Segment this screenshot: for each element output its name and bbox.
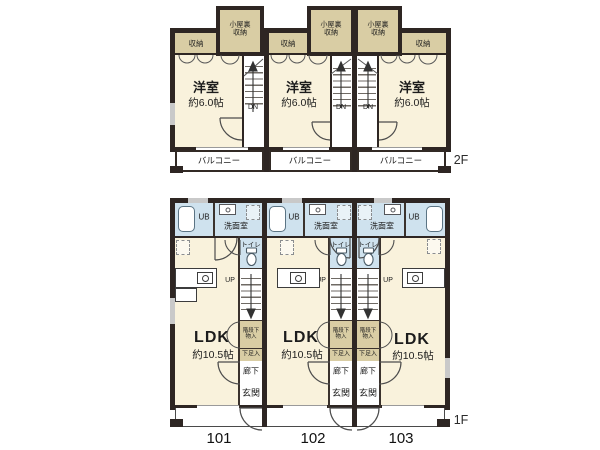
floor1-label: 1F <box>454 414 469 428</box>
up-label-101: UP <box>225 277 235 285</box>
stairwell-2f-101 <box>242 55 264 147</box>
toilet-label-101: トイレ <box>241 241 261 248</box>
unit-number-102: 102 <box>300 431 325 448</box>
balcony-label-103: バルコニー <box>380 156 422 165</box>
understairs-label-103: 階段下 物入 <box>360 328 377 340</box>
unit-number-103: 103 <box>388 431 413 448</box>
wall-1f-101-102 <box>262 203 267 408</box>
floor-plan-canvas: 収納 収納 収納 小屋裏 収納 小屋裏 収納 小屋裏 収納 洋室 約6.0帖 洋… <box>0 0 600 450</box>
kitchen-faucet-101 <box>202 275 209 282</box>
toilet-label-102: トイレ <box>331 241 351 248</box>
stair-treads <box>358 273 378 315</box>
stair-treads <box>331 273 351 315</box>
kitchen-faucet-102 <box>295 275 302 282</box>
room-size-2f-101: 約6.0帖 <box>188 98 224 110</box>
stair-treads <box>358 63 376 107</box>
bathtub-103 <box>426 206 443 232</box>
stair-treads <box>241 273 261 315</box>
window-2f-left-wall <box>170 103 175 125</box>
wall-col-103 <box>379 236 381 408</box>
kitchen-counter-101b <box>175 288 197 302</box>
dn-label-102: DN <box>336 104 346 112</box>
porch-divider-b <box>352 408 357 427</box>
stairwell-2f-102 <box>330 55 352 147</box>
room-label-2f-102: 洋室 <box>286 81 312 95</box>
stairwell-1f-103 <box>357 268 379 320</box>
ldk-size-102: 約10.5帖 <box>281 350 322 362</box>
porch-corner-right <box>437 419 450 427</box>
window-1f-top-101 <box>188 198 208 203</box>
washer-space-102 <box>337 205 351 220</box>
up-label-103: UP <box>383 277 393 285</box>
closet-label-102: 収納 <box>281 40 296 48</box>
attic-label-101: 小屋裏 収納 <box>230 21 251 36</box>
toilet-label-103: トイレ <box>358 241 378 248</box>
attic-label-102: 小屋裏 収納 <box>321 21 342 36</box>
balcony-label-101: バルコニー <box>198 156 240 165</box>
room-label-2f-103: 洋室 <box>399 81 425 95</box>
hallway-label-102: 廊下 <box>333 368 349 377</box>
window-1f-top-102 <box>282 198 302 203</box>
unit-number-101: 101 <box>206 431 231 448</box>
washroom-label-101: 洗面室 <box>224 223 248 232</box>
balcony-label-102: バルコニー <box>289 156 331 165</box>
closet-label-103: 収納 <box>416 40 431 48</box>
washer-space-103 <box>358 205 372 220</box>
entrance-label-102: 玄関 <box>332 389 350 399</box>
entrance-label-101: 玄関 <box>242 389 260 399</box>
washer-space-101 <box>246 205 260 220</box>
porch-divider-a <box>262 408 267 427</box>
washroom-label-103: 洗面室 <box>370 223 394 232</box>
fridge-space-101 <box>176 240 190 255</box>
stair-treads <box>245 61 263 107</box>
stairwell-2f-103 <box>357 55 379 147</box>
ldk-label-101: LDK <box>194 329 230 347</box>
kitchen-faucet-103 <box>412 275 419 282</box>
ub-label-103: UB <box>408 214 419 223</box>
window-1f-right-wall <box>445 358 450 378</box>
dn-label-103: DN <box>363 104 373 112</box>
stairwell-1f-102 <box>330 268 352 320</box>
shoebox-label-101: 下足入 <box>242 352 260 359</box>
attic-label-103: 小屋裏 収納 <box>368 21 389 36</box>
bathtub-102 <box>269 206 286 232</box>
wall-2f-101-102 <box>264 33 269 147</box>
balcony-corner-left <box>170 166 183 173</box>
wall-ub-101 <box>213 203 215 236</box>
stair-treads <box>333 63 351 107</box>
entrance-porch <box>175 408 445 427</box>
washstand-103 <box>384 204 401 215</box>
room-size-2f-102: 約6.0帖 <box>281 98 317 110</box>
ldk-size-101: 約10.5帖 <box>192 350 233 362</box>
understairs-label-101: 階段下 物入 <box>243 328 260 340</box>
porch-corner-left <box>170 419 183 427</box>
room-size-2f-103: 約6.0帖 <box>394 98 430 110</box>
hallway-label-101: 廊下 <box>243 368 259 377</box>
ub-label-101: UB <box>198 214 209 223</box>
washroom-label-102: 洗面室 <box>314 223 338 232</box>
ub-label-102: UB <box>288 214 299 223</box>
dn-label-101: DN <box>248 104 258 112</box>
ldk-size-103: 約10.5帖 <box>392 351 433 363</box>
window-1f-left-wall <box>170 298 175 324</box>
understairs-label-102: 階段下 物入 <box>333 328 350 340</box>
shoebox-label-102: 下足入 <box>332 352 350 359</box>
balcony-divider-a <box>264 150 269 172</box>
shoebox-label-103: 下足入 <box>359 352 377 359</box>
washstand-102 <box>309 204 326 215</box>
closet-label-101: 収納 <box>189 40 204 48</box>
ldk-label-102: LDK <box>283 329 319 347</box>
fridge-space-102 <box>280 240 294 255</box>
wall-ub-102 <box>303 203 305 236</box>
entrance-label-103: 玄関 <box>359 389 377 399</box>
floor2-label: 2F <box>454 154 469 168</box>
room-label-2f-101: 洋室 <box>193 81 219 95</box>
fridge-space-103 <box>427 239 441 254</box>
stairwell-1f-101 <box>240 268 262 320</box>
wall-ub-103 <box>404 203 406 236</box>
balcony-divider-b <box>352 150 357 172</box>
bathtub-101 <box>178 206 195 232</box>
washstand-101 <box>219 204 236 215</box>
balcony-corner-right <box>438 166 451 173</box>
ldk-label-103: LDK <box>394 331 430 349</box>
hallway-label-103: 廊下 <box>360 368 376 377</box>
window-1f-top-103 <box>374 198 392 203</box>
